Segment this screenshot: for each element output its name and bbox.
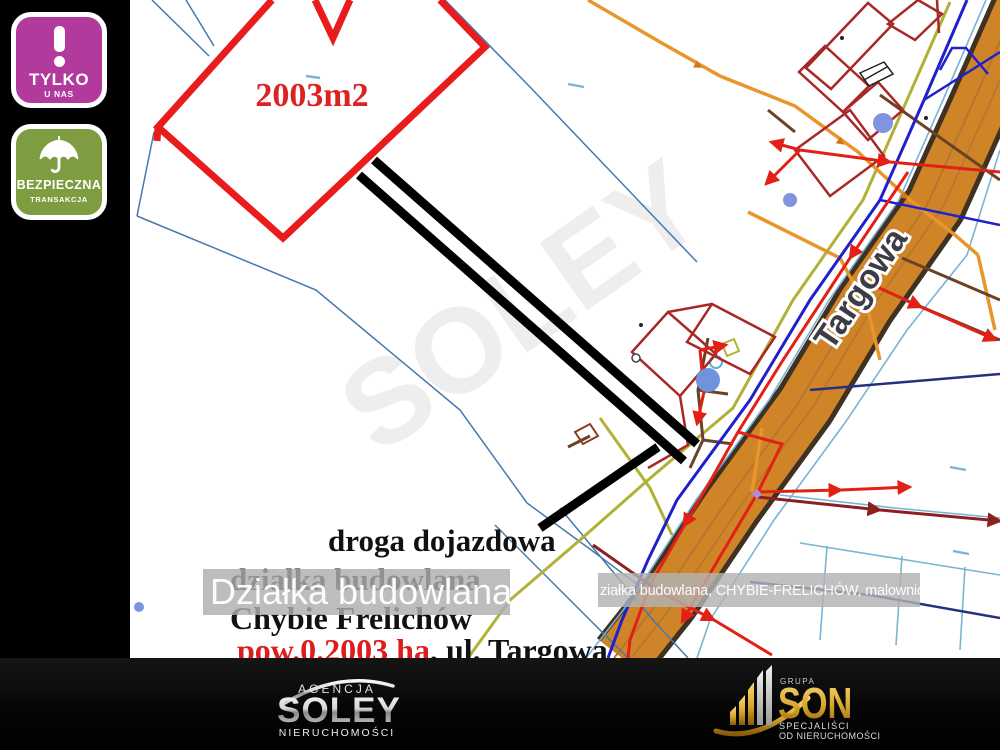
- annotation-area: pow.0.2003 ha: [237, 632, 430, 658]
- badge-subtitle: TRANSAKCJA: [30, 195, 88, 204]
- soley-line-bottom: NIERUCHOMOŚCI: [279, 726, 395, 739]
- badge-bezpieczna-transakcja: BEZPIECZNA TRANSAKCJA: [11, 124, 107, 220]
- watermark-large: Działka budowlana: [203, 569, 513, 615]
- plot-area-label: 2003m2: [255, 77, 368, 114]
- badge-tylko-u-nas: TYLKO U NAS: [11, 12, 107, 108]
- son-logo: GRUPA SON SPECJALIŚCI OD NIERUCHOMOŚCI: [700, 658, 900, 746]
- son-building-icon: [730, 665, 772, 725]
- annotation-access-road: droga dojazdowa: [328, 523, 556, 558]
- soley-logo: AGENCJA SOLEY NIERUCHOMOŚCI: [265, 658, 435, 746]
- badge-title: TYLKO: [29, 70, 89, 89]
- son-line-bottom-1: SPECJALIŚCI: [779, 720, 850, 731]
- watermark-small: ziałka budowlana, CHYBIE-FRELICHÓW, malo…: [598, 573, 979, 607]
- umbrella-icon: [35, 135, 83, 175]
- soley-name: SOLEY: [277, 691, 401, 730]
- watermark-large-text: Działka budowlana: [210, 571, 513, 612]
- targowa-road: [614, 0, 1000, 658]
- plot-outline: [157, 0, 485, 238]
- son-line-bottom-2: OD NIERUCHOMOŚCI: [779, 730, 881, 741]
- exclamation-dot-icon: [54, 56, 65, 67]
- footer-bar: AGENCJA SOLEY NIERUCHOMOŚCI: [0, 658, 1000, 750]
- svg-text:pow.0.2003 ha, ul. Targowa: pow.0.2003 ha, ul. Targowa: [237, 632, 608, 658]
- cadastral-map: SOLEY: [130, 0, 1000, 658]
- annotation-address: , ul. Targowa: [430, 632, 608, 658]
- badge-subtitle: U NAS: [44, 89, 73, 99]
- badge-title: BEZPIECZNA: [17, 176, 102, 195]
- watermark-small-text: ziałka budowlana, CHYBIE-FRELICHÓW, malo…: [600, 582, 979, 599]
- exclamation-icon: [54, 26, 65, 52]
- listing-image: TYLKO U NAS BEZPIECZNA TRANSAKCJA SOLEY: [0, 0, 1000, 750]
- map-canvas: SOLEY: [130, 0, 1000, 658]
